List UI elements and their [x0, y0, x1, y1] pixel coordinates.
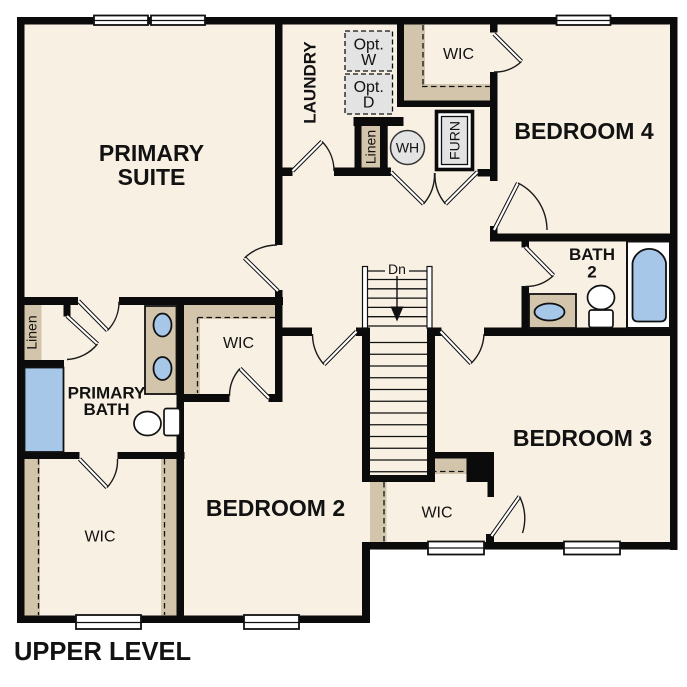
- svg-text:SUITE: SUITE: [118, 164, 186, 190]
- svg-text:WIC: WIC: [421, 505, 452, 522]
- svg-text:WH: WH: [396, 140, 419, 156]
- svg-text:BATH: BATH: [569, 245, 615, 264]
- svg-text:BEDROOM 4: BEDROOM 4: [514, 118, 654, 144]
- svg-text:Linen: Linen: [363, 130, 379, 164]
- svg-text:Dn: Dn: [388, 261, 406, 277]
- svg-text:BATH: BATH: [84, 400, 130, 419]
- svg-text:2: 2: [587, 263, 596, 282]
- svg-text:PRIMARY: PRIMARY: [99, 140, 204, 166]
- svg-text:WIC: WIC: [443, 46, 474, 63]
- svg-text:WIC: WIC: [223, 335, 254, 352]
- svg-text:Linen: Linen: [24, 315, 40, 349]
- svg-text:W: W: [361, 52, 377, 69]
- svg-text:Opt.: Opt.: [354, 37, 384, 54]
- svg-text:BEDROOM 2: BEDROOM 2: [206, 495, 345, 521]
- svg-text:FURN: FURN: [447, 121, 463, 160]
- svg-text:LAUNDRY: LAUNDRY: [301, 41, 320, 124]
- svg-text:WIC: WIC: [84, 529, 115, 546]
- svg-text:UPPER LEVEL: UPPER LEVEL: [14, 638, 191, 666]
- svg-text:Opt.: Opt.: [354, 79, 384, 96]
- svg-text:D: D: [363, 95, 375, 112]
- svg-text:BEDROOM 3: BEDROOM 3: [513, 425, 652, 451]
